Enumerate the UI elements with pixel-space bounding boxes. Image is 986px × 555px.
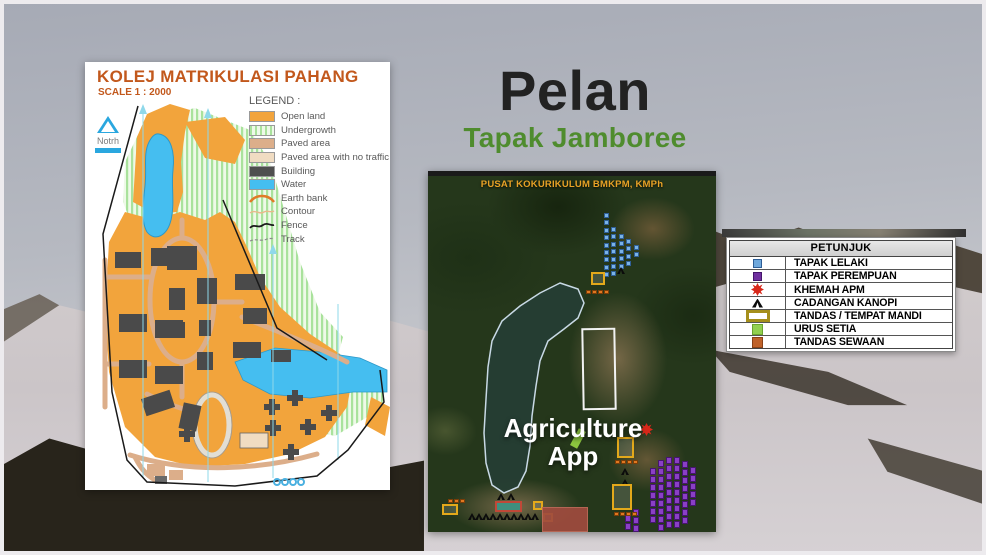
tapak-perempuan-marker xyxy=(650,484,656,491)
petunjuk-label: TAPAK LELAKI xyxy=(786,257,952,269)
tapak-perempuan-marker xyxy=(650,508,656,515)
tapak-lelaki-marker xyxy=(611,234,616,239)
tapak-perempuan-marker xyxy=(658,492,664,499)
tapak-lelaki-marker xyxy=(634,245,639,250)
tapak-perempuan-marker xyxy=(666,497,672,504)
slide-titles: Pelan Tapak Jamboree xyxy=(420,60,730,154)
petunjuk-label: TAPAK PEREMPUAN xyxy=(786,270,952,282)
tapak-lelaki-marker xyxy=(611,242,616,247)
satellite-markers-layer xyxy=(428,171,716,532)
tandas-sewaan-marker xyxy=(632,512,637,516)
tandas-marker xyxy=(591,272,605,285)
petunjuk-label: TANDAS SEWAAN xyxy=(786,336,952,348)
kanopi-marker xyxy=(475,513,483,520)
tapak-perempuan-marker xyxy=(666,521,672,528)
left-map-scale: SCALE 1 : 2000 xyxy=(98,87,171,98)
tapak-perempuan-marker xyxy=(658,484,664,491)
tapak-lelaki-marker xyxy=(619,249,624,254)
presentation-slide: KOLEJ MATRIKULASI PAHANG SCALE 1 : 2000 … xyxy=(0,0,986,555)
tapak-lelaki-marker xyxy=(604,243,609,248)
north-triangle-icon xyxy=(97,116,119,133)
tapak-perempuan-marker xyxy=(658,476,664,483)
tapak-perempuan-marker xyxy=(666,513,672,520)
page-title: Pelan xyxy=(420,60,730,122)
tapak-perempuan-marker xyxy=(666,481,672,488)
left-map-title: KOLEJ MATRIKULASI PAHANG xyxy=(97,67,359,87)
agriculture-app-label: Agriculture App xyxy=(428,414,716,470)
petunjuk-top-bar xyxy=(722,229,966,237)
legend-swatch xyxy=(249,179,275,190)
petunjuk-row: TANDAS SEWAAN xyxy=(730,336,952,348)
kanopi-marker xyxy=(531,513,539,520)
tapak-perempuan-marker xyxy=(682,517,688,524)
tapak-lelaki-marker xyxy=(604,220,609,225)
kanopi-marker xyxy=(468,513,476,520)
kanopi-marker xyxy=(503,513,511,520)
tapak-perempuan-marker xyxy=(650,516,656,523)
legend-label: Fence xyxy=(281,220,308,231)
tapak-perempuan-marker xyxy=(682,501,688,508)
pool-marker xyxy=(495,501,522,512)
tandas-sewaan-marker xyxy=(448,499,453,503)
north-marker: Notrh xyxy=(93,116,123,153)
legend-label: Open land xyxy=(281,111,325,122)
page-subtitle: Tapak Jamboree xyxy=(420,122,730,154)
legend-swatch xyxy=(249,138,275,149)
petunjuk-label: CADANGAN KANOPI xyxy=(786,297,952,309)
line-earth-icon xyxy=(249,193,275,204)
tapak-lelaki-marker xyxy=(611,271,616,276)
legend-label: Earth bank xyxy=(281,193,327,204)
tapak-perempuan-marker xyxy=(690,483,696,490)
tandas-sewaan-marker xyxy=(614,512,619,516)
tandas-sewaan-marker xyxy=(604,290,609,294)
tandas-marker xyxy=(442,504,458,515)
tapak-perempuan-marker xyxy=(682,485,688,492)
app-line: App xyxy=(428,442,716,470)
tapak-perempuan-marker xyxy=(666,489,672,496)
tapak-perempuan-marker xyxy=(682,477,688,484)
legend-label: Building xyxy=(281,166,315,177)
tapak-lelaki-marker xyxy=(626,246,631,251)
tapak-perempuan-marker xyxy=(650,500,656,507)
blue-square-icon xyxy=(753,259,762,268)
line-contour-icon xyxy=(249,206,275,217)
line-fence-icon xyxy=(249,220,275,231)
tapak-perempuan-marker xyxy=(650,476,656,483)
legend-item: Building xyxy=(249,164,387,178)
tapak-lelaki-marker xyxy=(611,249,616,254)
purple-square-icon xyxy=(753,272,762,281)
left-map-legend-title: LEGEND : xyxy=(249,95,387,107)
tapak-perempuan-marker xyxy=(690,491,696,498)
legend-label: Contour xyxy=(281,206,315,217)
tapak-lelaki-marker xyxy=(619,234,624,239)
running-track xyxy=(195,395,229,455)
legend-label: Paved area with no traffic xyxy=(281,152,389,163)
tapak-perempuan-marker xyxy=(658,508,664,515)
tapak-lelaki-marker xyxy=(626,239,631,244)
tapak-perempuan-marker xyxy=(625,523,631,530)
kanopi-marker xyxy=(517,513,525,520)
tapak-perempuan-marker xyxy=(690,499,696,506)
brown-square-icon xyxy=(752,337,763,348)
tapak-perempuan-marker xyxy=(625,515,631,522)
tapak-perempuan-marker xyxy=(674,473,680,480)
tapak-perempuan-marker xyxy=(682,493,688,500)
legend-item: Open land xyxy=(249,110,387,124)
proposed-area-outline xyxy=(581,328,616,411)
green-square-icon xyxy=(752,324,763,335)
legend-item: Paved area with no traffic xyxy=(249,151,387,165)
tandas-sewaan-marker xyxy=(586,290,591,294)
tapak-lelaki-marker xyxy=(634,252,639,257)
legend-label: Water xyxy=(281,179,306,190)
tapak-perempuan-marker xyxy=(674,505,680,512)
legend-label: Track xyxy=(281,234,305,245)
tapak-lelaki-marker xyxy=(619,264,624,269)
legend-swatch xyxy=(249,111,275,122)
petunjuk-header: PETUNJUK xyxy=(730,241,952,257)
petunjuk-row: TAPAK LELAKI xyxy=(730,257,952,270)
petunjuk-label: URUS SETIA xyxy=(786,323,952,335)
north-bar xyxy=(95,148,121,153)
tapak-perempuan-marker xyxy=(674,497,680,504)
petunjuk-row: URUS SETIA xyxy=(730,323,952,336)
tapak-perempuan-marker xyxy=(674,521,680,528)
tapak-lelaki-marker xyxy=(619,256,624,261)
left-map-card: KOLEJ MATRIKULASI PAHANG SCALE 1 : 2000 … xyxy=(85,62,390,490)
kanopi-marker xyxy=(497,493,505,500)
satellite-map: PUSAT KOKURIKULUM BMKPM, KMPh Agricultur… xyxy=(428,171,716,532)
tapak-lelaki-marker xyxy=(626,261,631,266)
tapak-perempuan-marker xyxy=(650,492,656,499)
yellow-outline-rect-icon xyxy=(746,310,770,322)
legend-item: Water xyxy=(249,178,387,192)
petunjuk-label: TANDAS / TEMPAT MANDI xyxy=(786,310,952,322)
tapak-perempuan-marker xyxy=(658,500,664,507)
agriculture-line: Agriculture xyxy=(428,414,716,442)
petunjuk-row: CADANGAN KANOPI xyxy=(730,297,952,310)
tapak-lelaki-marker xyxy=(604,235,609,240)
legend-swatch xyxy=(249,166,275,177)
lake xyxy=(143,134,173,237)
tandas-sewaan-marker xyxy=(626,512,631,516)
north-label: Notrh xyxy=(93,136,123,146)
tapak-lelaki-marker xyxy=(604,265,609,270)
kanopi-marker xyxy=(482,513,490,520)
tapak-perempuan-marker xyxy=(666,505,672,512)
tapak-lelaki-marker xyxy=(626,254,631,259)
legend-item: Undergrowth xyxy=(249,124,387,138)
red-star-icon xyxy=(751,283,764,296)
tapak-lelaki-marker xyxy=(619,241,624,246)
tapak-perempuan-marker xyxy=(674,513,680,520)
tapak-perempuan-marker xyxy=(666,473,672,480)
legend-item: Fence xyxy=(249,219,387,233)
tapak-perempuan-marker xyxy=(690,475,696,482)
legend-label: Paved area xyxy=(281,138,330,149)
line-track-icon xyxy=(249,234,275,245)
petunjuk-row: TAPAK PEREMPUAN xyxy=(730,270,952,283)
kanopi-marker xyxy=(489,513,497,520)
kanopi-marker xyxy=(507,493,515,500)
tandas-sewaan-marker xyxy=(592,290,597,294)
tapak-perempuan-marker xyxy=(658,516,664,523)
petunjuk-legend: PETUNJUK TAPAK LELAKITAPAK PEREMPUANKHEM… xyxy=(726,237,956,352)
court-marker xyxy=(542,507,588,532)
tapak-lelaki-marker xyxy=(611,227,616,232)
tapak-perempuan-marker xyxy=(682,509,688,516)
tapak-lelaki-marker xyxy=(611,257,616,262)
tapak-perempuan-marker xyxy=(633,517,639,524)
tapak-perempuan-marker xyxy=(674,481,680,488)
tapak-perempuan-marker xyxy=(674,489,680,496)
tandas-marker xyxy=(612,484,632,510)
black-canopy-triangle-icon xyxy=(752,299,763,308)
petunjuk-row: TANDAS / TEMPAT MANDI xyxy=(730,310,952,323)
tandas-sewaan-marker xyxy=(598,290,603,294)
tandas-sewaan-marker xyxy=(460,499,465,503)
tapak-perempuan-marker xyxy=(658,524,664,531)
tapak-lelaki-marker xyxy=(604,213,609,218)
legend-item: Track xyxy=(249,232,387,246)
legend-item: Contour xyxy=(249,205,387,219)
tapak-lelaki-marker xyxy=(611,264,616,269)
kanopi-marker xyxy=(510,513,518,520)
petunjuk-row: KHEMAH APM xyxy=(730,283,952,297)
legend-item: Earth bank xyxy=(249,192,387,206)
field xyxy=(240,433,268,448)
petunjuk-table: PETUNJUK TAPAK LELAKITAPAK PEREMPUANKHEM… xyxy=(729,240,953,349)
tandas-sewaan-marker xyxy=(454,499,459,503)
kanopi-marker xyxy=(496,513,504,520)
tapak-perempuan-marker xyxy=(633,525,639,532)
legend-label: Undergrowth xyxy=(281,125,336,136)
tandas-sewaan-marker xyxy=(620,512,625,516)
legend-swatch xyxy=(249,152,275,163)
petunjuk-label: KHEMAH APM xyxy=(786,283,952,296)
tapak-lelaki-marker xyxy=(604,228,609,233)
left-map-legend: LEGEND : Open landUndergrowthPaved areaP… xyxy=(249,95,387,246)
tapak-lelaki-marker xyxy=(604,250,609,255)
legend-swatch-stripes xyxy=(249,125,275,136)
kanopi-marker xyxy=(524,513,532,520)
tapak-lelaki-marker xyxy=(604,257,609,262)
legend-item: Paved area xyxy=(249,137,387,151)
